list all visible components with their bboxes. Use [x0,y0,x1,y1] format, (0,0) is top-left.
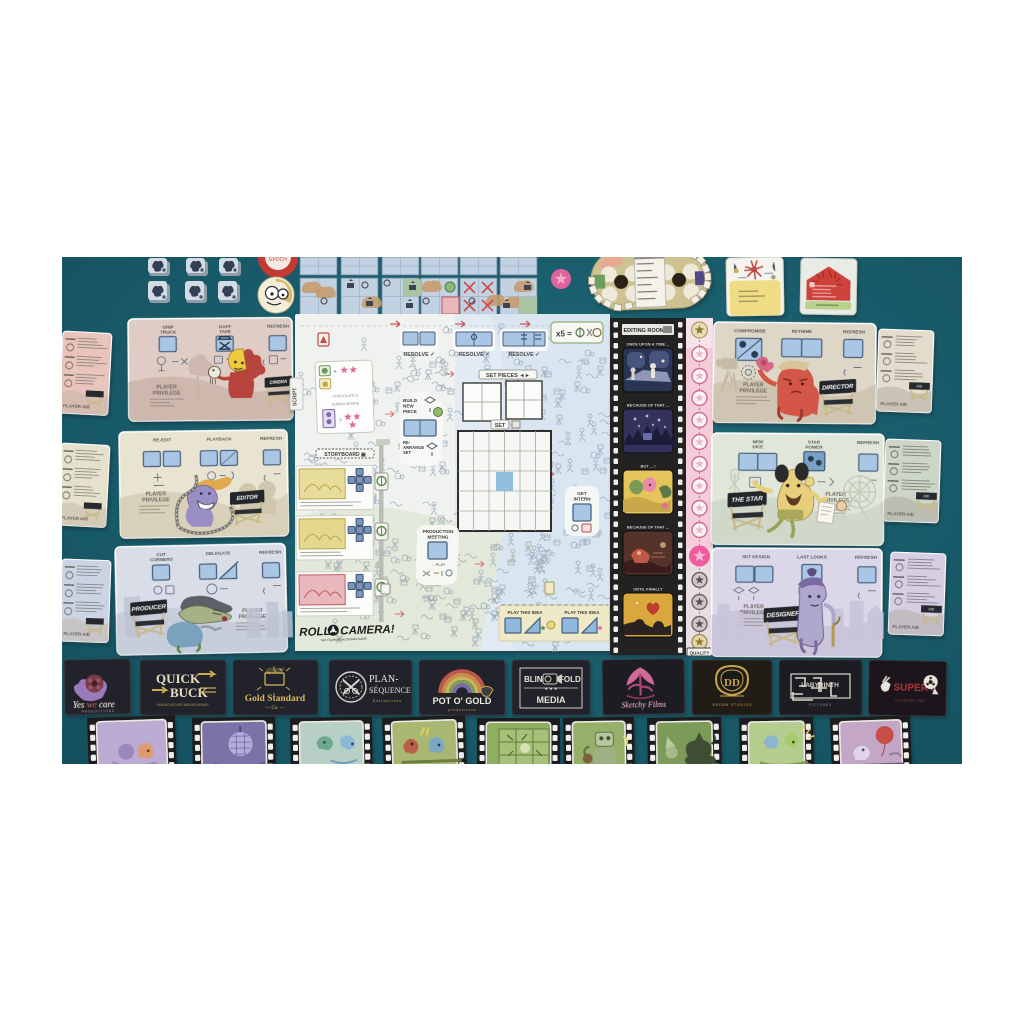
svg-text:COMPROMISE: COMPROMISE [734,328,766,333]
svg-text:PLAYBACK: PLAYBACK [207,436,233,441]
svg-text:INTERN: INTERN [573,497,591,502]
svg-text:UNTIL FINALLY: UNTIL FINALLY [633,587,663,592]
svg-text:LABYRINTH: LABYRINTH [801,682,839,689]
svg-text:DICE: DICE [752,444,763,449]
svg-text:MEDIA: MEDIA [537,695,567,705]
svg-text:PLAYER AID: PLAYER AID [880,401,908,407]
svg-text:REFRESH: REFRESH [260,436,283,441]
svg-text:PLAYER AID: PLAYER AID [63,631,91,637]
svg-text:P I C T U R E S: P I C T U R E S [809,703,831,707]
svg-text:MAKING MOVIES MAKING MONEY: MAKING MOVIES MAKING MONEY [157,703,210,707]
svg-text:FOLD: FOLD [559,675,581,684]
svg-text:AID: AID [923,495,930,499]
svg-text:SÉQUENCE: SÉQUENCE [369,685,411,695]
svg-text:BUT ... !: BUT ... ! [640,464,655,469]
svg-text:AID: AID [928,608,935,612]
svg-text:CAMERA!: CAMERA! [340,624,395,638]
svg-text:— Co. —: — Co. — [264,706,286,711]
svg-text:EDITING ROOM: EDITING ROOM [624,328,665,334]
svg-text:Gold Standard: Gold Standard [245,694,306,704]
svg-text:REFRESH: REFRESH [855,555,878,560]
svg-text:QUICK: QUICK [156,671,201,686]
svg-text:QUALITY: QUALITY [690,651,710,656]
svg-text:P R O D U C T I O N S: P R O D U C T I O N S [82,709,114,714]
svg-text:TRUCK: TRUCK [160,330,177,335]
svg-text:TAPE: TAPE [219,329,231,334]
svg-text:PRIVILEGE: PRIVILEGE [739,388,767,394]
svg-text:D R E A M S T U D I O S: D R E A M S T U D I O S [712,703,752,707]
svg-text:NEW: NEW [403,404,414,409]
svg-text:POWER: POWER [805,445,823,450]
svg-text:S T U D I O S I N C.: S T U D I O S I N C. [895,698,925,703]
svg-text:x5 =: x5 = [556,330,572,339]
svg-text:BECAUSE OF THAT ...: BECAUSE OF THAT ... [627,525,669,530]
svg-text:PIECE: PIECE [403,409,417,414]
svg-text:SET: SET [403,450,412,455]
svg-text:RESOLVE ✓: RESOLVE ✓ [458,352,489,358]
svg-text:REFRESH: REFRESH [267,324,290,329]
svg-text:DD: DD [724,677,740,689]
svg-text:PRODUCTION: PRODUCTION [423,529,455,534]
svg-text:PRIVILEGE: PRIVILEGE [153,391,181,397]
svg-text:AID: AID [916,385,923,389]
svg-text:→ PLAY: → PLAY [430,562,445,567]
svg-text:REFRESH: REFRESH [843,329,866,334]
svg-text:RETHINK: RETHINK [792,329,813,334]
svg-text:E n t r e p r i s e s: E n t r e p r i s e s [373,699,401,703]
svg-text:SET DESIGN: SET DESIGN [742,554,771,559]
svg-text:EPOCH: EPOCH [269,257,287,263]
svg-text:PRIVILEGE: PRIVILEGE [142,497,170,503]
svg-text:PLAN-: PLAN- [369,674,398,685]
svg-text:BUILD: BUILD [403,398,418,403]
svg-text:BECAUSE OF THAT ...: BECAUSE OF THAT ... [627,403,669,408]
svg-text:PLAYER AID: PLAYER AID [887,511,915,517]
svg-text:GET: GET [577,491,587,496]
svg-text:PLAY THIS IDEA: PLAY THIS IDEA [564,610,600,615]
svg-text:SCRIPT: SCRIPT [293,388,299,406]
svg-text:=: = [339,417,342,423]
svg-text:LAST LOOKS: LAST LOOKS [797,554,827,559]
svg-text:ROLL: ROLL [299,626,331,639]
svg-text:ONCE UPON A TIME ...: ONCE UPON A TIME ... [626,342,669,347]
svg-text:REFRESH: REFRESH [857,440,880,445]
svg-text:POT O' GOLD: POT O' GOLD [433,696,492,706]
svg-text:MEETING: MEETING [428,535,449,540]
svg-text:CORNERS: CORNERS [150,557,173,562]
svg-text:PLAY THIS IDEA: PLAY THIS IDEA [507,610,543,615]
svg-text:Sketchy Films: Sketchy Films [621,700,666,710]
svg-text:DELEGATE: DELEGATE [206,551,231,557]
svg-text:RESOLVE ✓: RESOLVE ✓ [508,352,539,358]
svg-text:SET PIECES ◄►: SET PIECES ◄► [486,373,530,379]
svg-text:p r o d u c t i o n s: p r o d u c t i o n s [449,708,476,712]
svg-text:RESOLVE ✓: RESOLVE ✓ [403,352,434,358]
svg-text:PLAYER AID: PLAYER AID [892,624,920,630]
svg-text:SET: SET [495,423,506,429]
svg-text:REFRESH: REFRESH [259,550,282,555]
svg-text:STORYBOARD ▣: STORYBOARD ▣ [324,452,366,458]
svg-text:RE-EDIT: RE-EDIT [153,437,172,442]
svg-text:Yes we care: Yes we care [73,699,115,710]
svg-text:★ ★ ★: ★ ★ ★ [545,686,558,691]
